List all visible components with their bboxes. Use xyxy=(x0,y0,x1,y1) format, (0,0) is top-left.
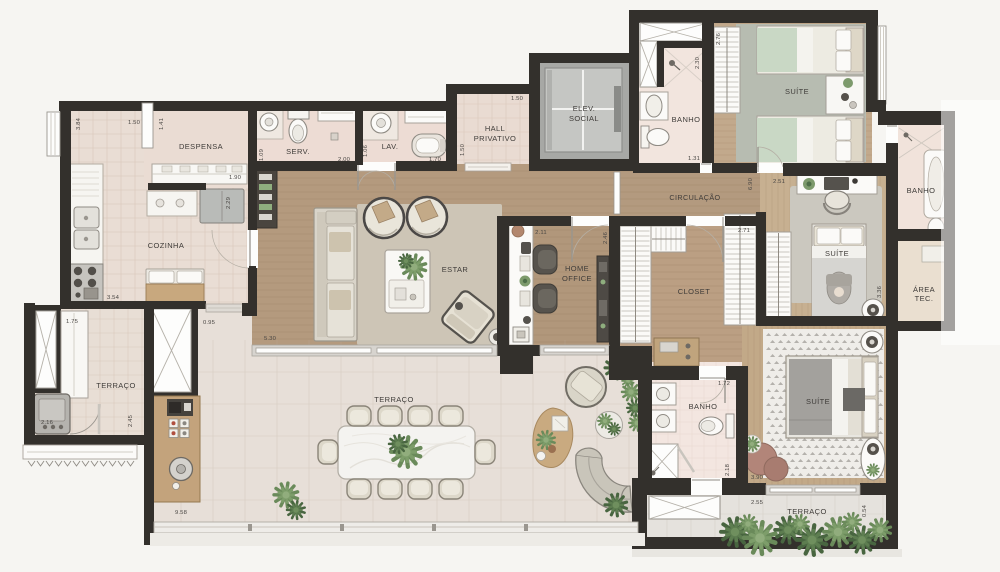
svg-text:SUÍTE: SUÍTE xyxy=(825,249,849,258)
svg-text:BANHO: BANHO xyxy=(689,402,718,411)
svg-text:DESPENSA: DESPENSA xyxy=(179,142,223,151)
svg-text:HOME: HOME xyxy=(565,264,589,273)
svg-text:2.55: 2.55 xyxy=(751,500,764,506)
svg-text:2.18: 2.18 xyxy=(725,463,731,476)
svg-text:COZINHA: COZINHA xyxy=(148,241,185,250)
svg-text:SUÍTE: SUÍTE xyxy=(806,397,830,406)
svg-text:6.90: 6.90 xyxy=(748,177,754,190)
svg-text:CIRCULAÇÃO: CIRCULAÇÃO xyxy=(669,193,720,202)
svg-text:CLOSET: CLOSET xyxy=(678,287,710,296)
svg-text:2.46: 2.46 xyxy=(603,231,609,244)
svg-text:2.51: 2.51 xyxy=(773,179,785,185)
svg-text:HALL: HALL xyxy=(485,124,505,133)
svg-text:1.31: 1.31 xyxy=(688,156,700,162)
svg-text:2.71: 2.71 xyxy=(738,228,750,234)
svg-text:ELEV.: ELEV. xyxy=(573,104,596,113)
svg-text:PRIVATIVO: PRIVATIVO xyxy=(474,134,517,143)
svg-text:ESTAR: ESTAR xyxy=(442,265,469,274)
svg-text:SUÍTE: SUÍTE xyxy=(785,87,809,96)
svg-text:2.45: 2.45 xyxy=(128,414,134,427)
svg-text:2.00: 2.00 xyxy=(338,157,351,163)
svg-text:3.90: 3.90 xyxy=(751,475,764,481)
svg-text:BANHO: BANHO xyxy=(672,115,701,124)
svg-text:9.58: 9.58 xyxy=(175,510,188,516)
svg-text:BANHO: BANHO xyxy=(907,186,936,195)
svg-text:2.16: 2.16 xyxy=(41,420,54,426)
svg-text:5.30: 5.30 xyxy=(264,336,277,342)
svg-text:1.72: 1.72 xyxy=(718,381,730,387)
svg-text:TEC.: TEC. xyxy=(915,294,934,303)
svg-text:3.36: 3.36 xyxy=(877,285,883,298)
svg-text:0.54: 0.54 xyxy=(862,504,868,517)
svg-text:3.54: 3.54 xyxy=(107,295,120,301)
svg-text:2.11: 2.11 xyxy=(535,230,547,236)
svg-text:3.84: 3.84 xyxy=(76,117,82,130)
svg-text:SERV.: SERV. xyxy=(286,147,310,156)
svg-text:2.29: 2.29 xyxy=(226,197,232,209)
svg-text:1.50: 1.50 xyxy=(460,143,466,156)
svg-text:TERRAÇO: TERRAÇO xyxy=(374,395,413,404)
svg-text:1.41: 1.41 xyxy=(159,118,165,130)
svg-text:1.06: 1.06 xyxy=(363,144,369,157)
svg-text:1.90: 1.90 xyxy=(229,175,242,181)
svg-text:OFFICE: OFFICE xyxy=(562,274,592,283)
svg-text:ÁREA: ÁREA xyxy=(913,285,935,294)
svg-text:0.95: 0.95 xyxy=(203,320,216,326)
svg-text:2.76: 2.76 xyxy=(716,32,722,45)
svg-text:2.30: 2.30 xyxy=(695,56,701,69)
svg-text:SOCIAL: SOCIAL xyxy=(569,114,599,123)
svg-text:TERRAÇO: TERRAÇO xyxy=(787,507,826,516)
svg-text:1.50: 1.50 xyxy=(128,120,141,126)
svg-text:1.70: 1.70 xyxy=(429,157,442,163)
svg-text:1.50: 1.50 xyxy=(511,96,524,102)
svg-text:TERRAÇO: TERRAÇO xyxy=(96,381,135,390)
svg-text:1.75: 1.75 xyxy=(66,319,79,325)
svg-text:LAV.: LAV. xyxy=(382,142,399,151)
svg-text:1.09: 1.09 xyxy=(259,149,265,161)
